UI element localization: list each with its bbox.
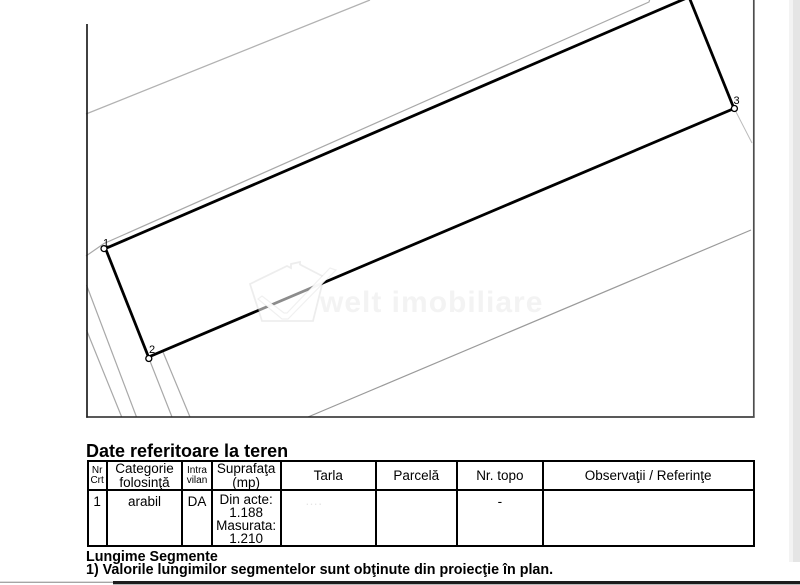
svg-text:3: 3 <box>734 95 740 107</box>
svg-text:2: 2 <box>149 344 155 356</box>
svg-text:welt imobiliare: welt imobiliare <box>319 286 543 319</box>
svg-text:1: 1 <box>103 238 109 250</box>
